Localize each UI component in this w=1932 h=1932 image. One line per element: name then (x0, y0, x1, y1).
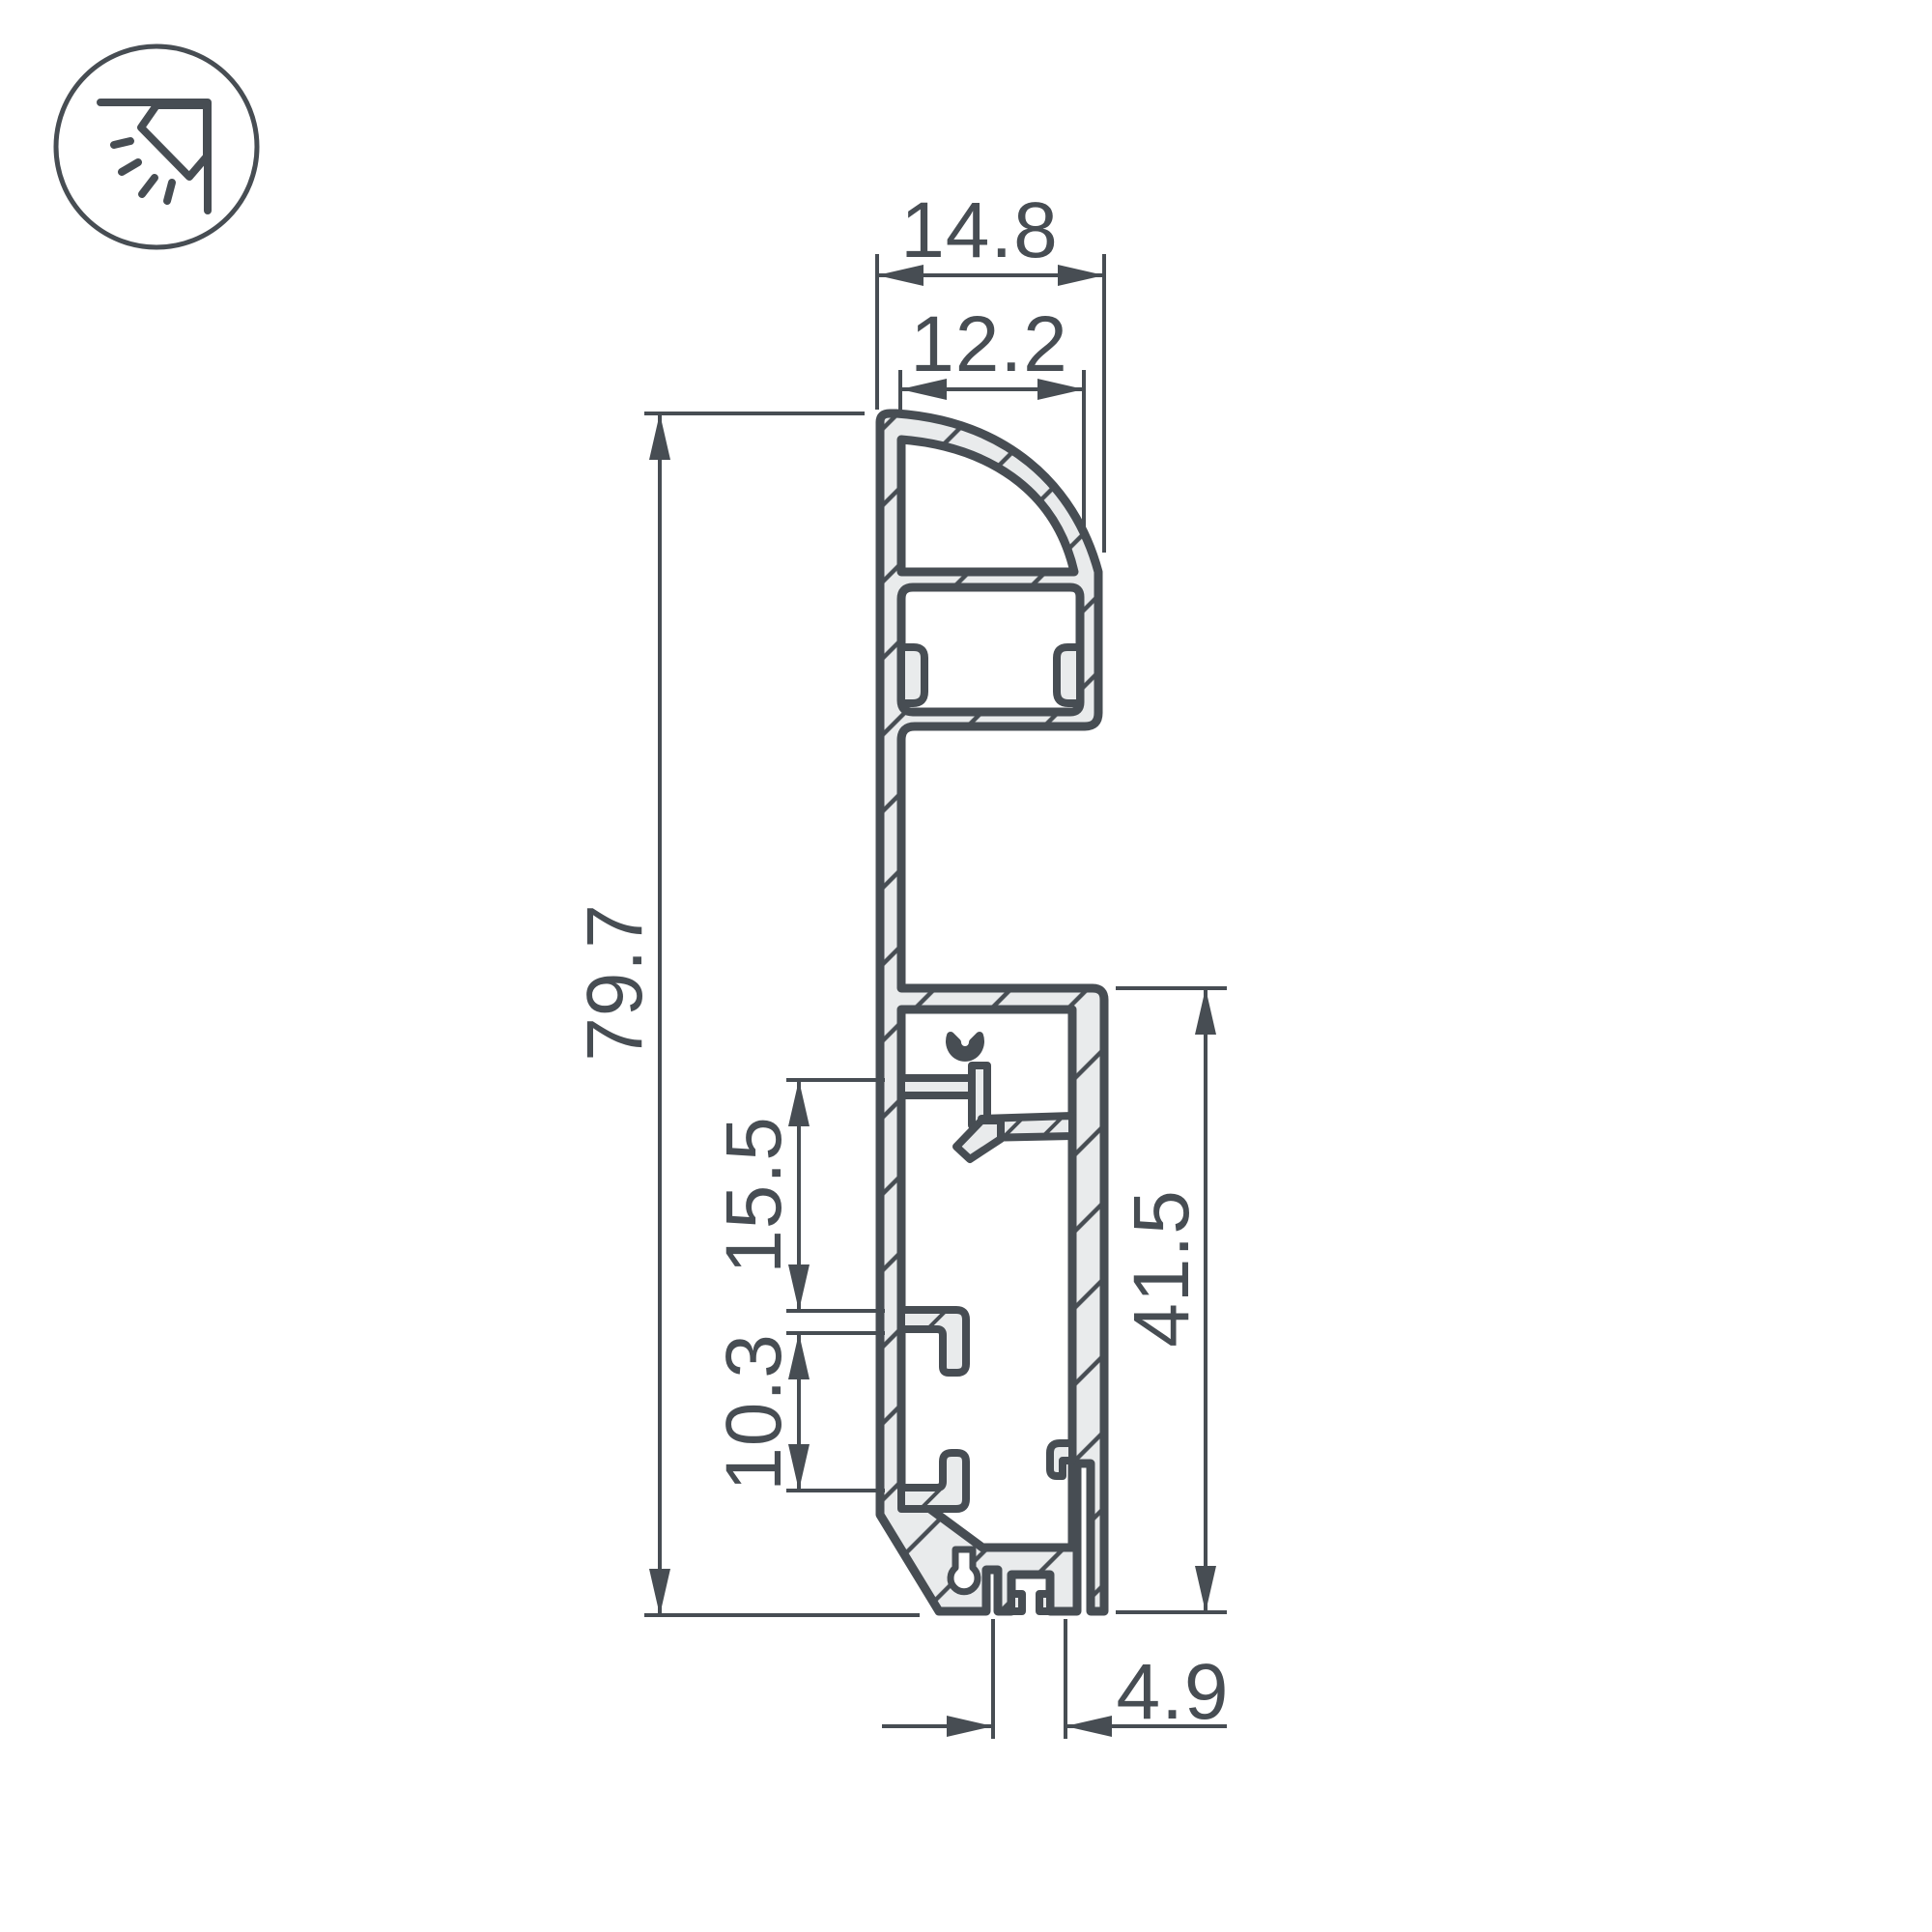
arrowhead (1058, 265, 1104, 286)
icon-lamp-body (141, 105, 207, 177)
profile-body-outline (880, 413, 1104, 1611)
cornice-light-icon (56, 46, 257, 247)
screw-keyhole (951, 1549, 978, 1592)
mount-ledge (901, 1078, 976, 1095)
feature-hatch-ticks (923, 1119, 1061, 1507)
foot-lip-right (1039, 1594, 1050, 1611)
dim-label-overall-height: 79.7 (571, 903, 659, 1062)
dimension-upper-clip-gap: 15.5 (710, 1080, 885, 1311)
dim-label-top-overall-width: 14.8 (900, 186, 1059, 274)
arrowhead (1195, 988, 1216, 1035)
dim-label-base-section-height: 41.5 (1118, 1189, 1206, 1348)
cable-hook-upper (901, 1310, 966, 1373)
drawing-page: 14.8 12.2 79.7 15.5 10.3 (0, 0, 1932, 1932)
profile-inner-features (901, 647, 1080, 1611)
foot-lip-left (1011, 1594, 1022, 1611)
dim-label-foot-width: 4.9 (1117, 1648, 1230, 1736)
screw-boss (950, 1036, 980, 1058)
icon-ceiling-wall-corner (100, 102, 208, 211)
arrowhead (1195, 1566, 1216, 1612)
dim-label-lower-clip-gap: 10.3 (710, 1333, 798, 1492)
arrowhead (1065, 1716, 1112, 1737)
arrowhead (649, 413, 670, 460)
arrowhead (649, 1569, 670, 1615)
dimension-foot-width: 4.9 (882, 1619, 1230, 1739)
led-channel-clip-left (901, 647, 924, 703)
clip-beak (956, 1121, 1001, 1159)
arrowhead (947, 1716, 993, 1737)
dimension-lower-clip-gap: 10.3 (710, 1333, 885, 1492)
dim-label-upper-clip-gap: 15.5 (710, 1116, 798, 1274)
drawing-canvas: 14.8 12.2 79.7 15.5 10.3 (0, 0, 1932, 1932)
profile-cross-section (880, 413, 1104, 1611)
dim-label-lens-opening-width: 12.2 (910, 300, 1068, 388)
dimension-base-section-height: 41.5 (1116, 988, 1227, 1612)
led-channel-clip-right (1057, 647, 1080, 703)
cable-hook-lower (901, 1453, 966, 1509)
